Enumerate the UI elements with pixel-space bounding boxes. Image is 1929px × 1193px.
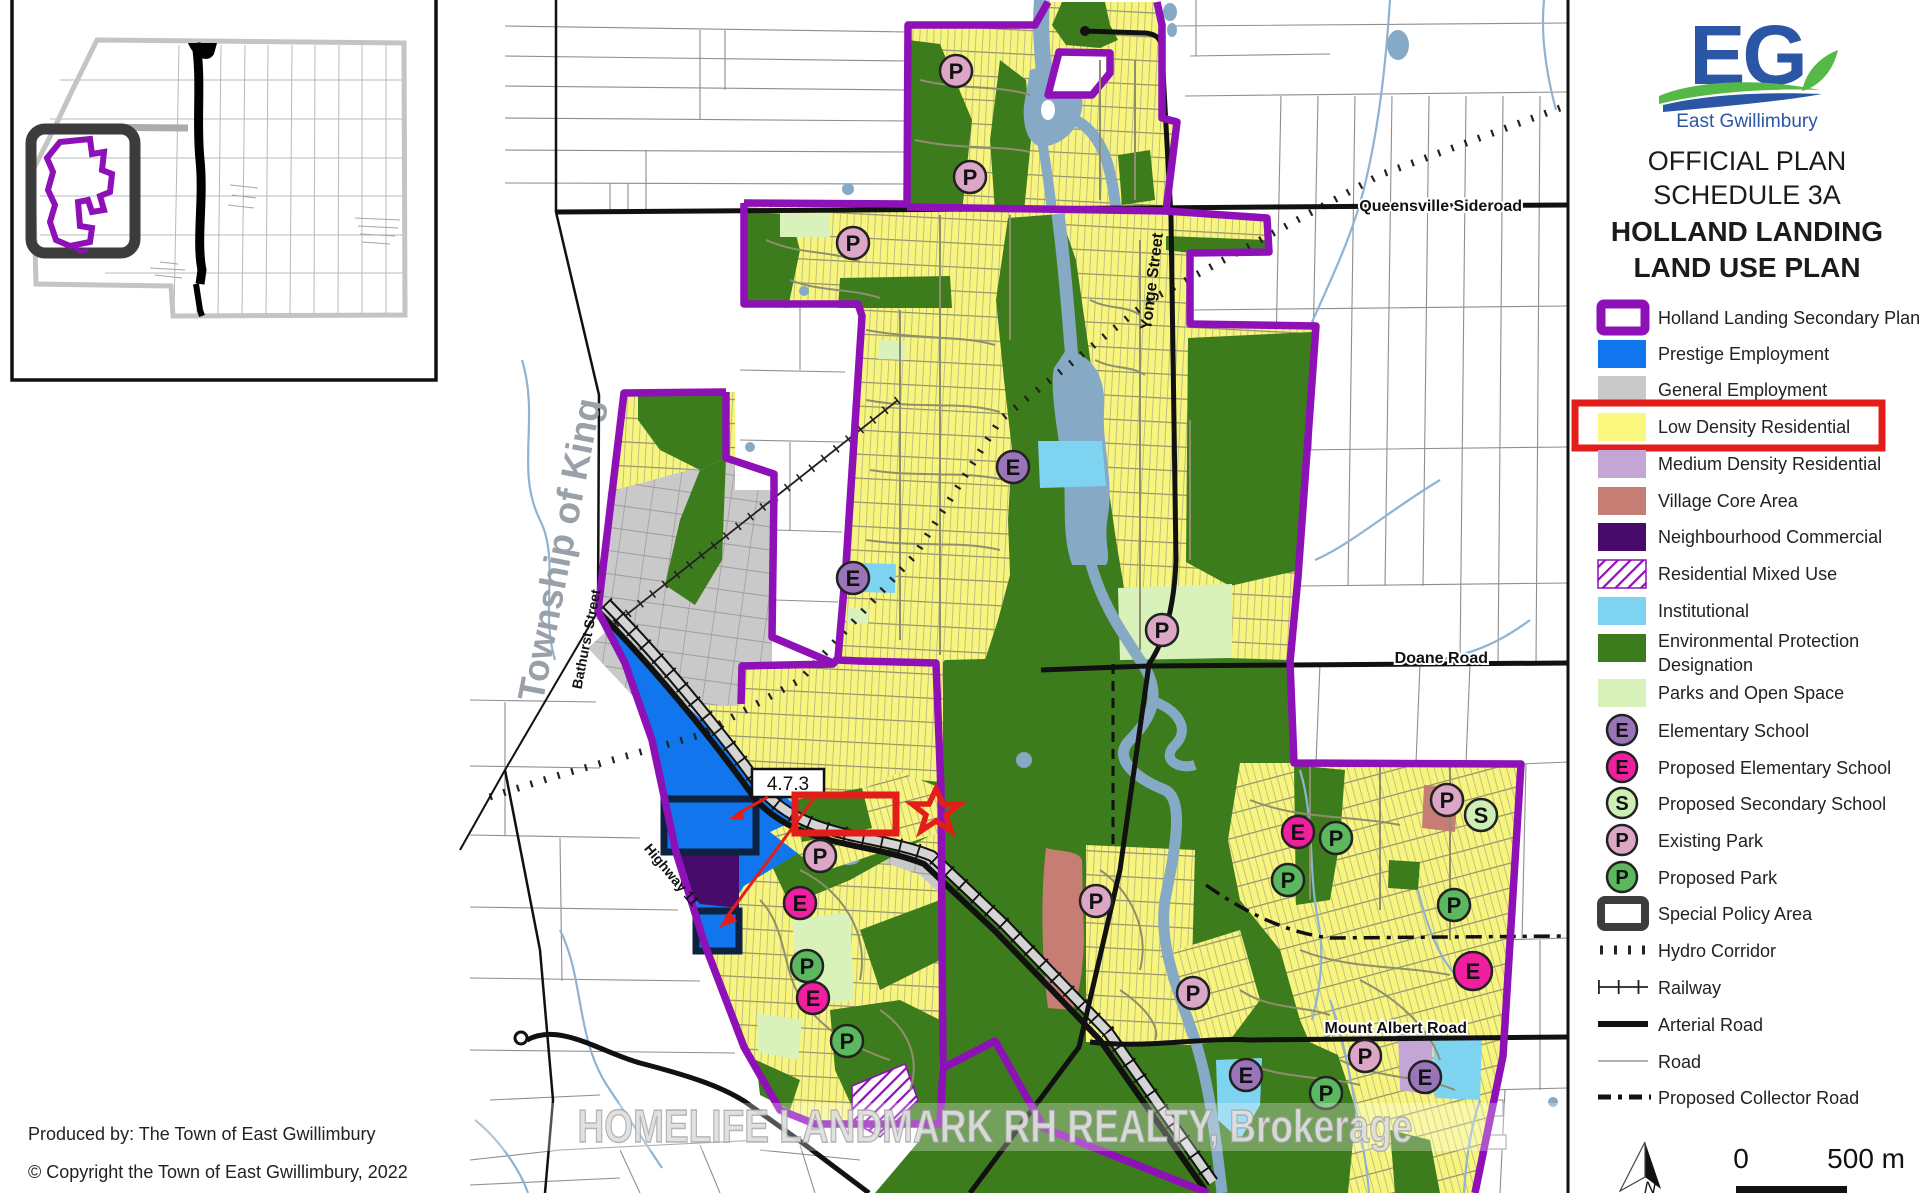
svg-text:P: P [1615,830,1628,852]
svg-text:P: P [1089,889,1104,914]
svg-text:E: E [1615,757,1628,779]
svg-text:Neighbourhood Commercial: Neighbourhood Commercial [1658,527,1882,547]
svg-text:E: E [1615,720,1628,742]
svg-text:P: P [840,1029,855,1054]
svg-text:Hydro Corridor: Hydro Corridor [1658,941,1776,961]
svg-text:P: P [1329,826,1344,851]
svg-text:P: P [846,231,861,256]
svg-text:P: P [1358,1044,1373,1069]
svg-text:Mount Albert Road: Mount Albert Road [1325,1020,1468,1037]
svg-text:Proposed Secondary School: Proposed Secondary School [1658,794,1886,814]
svg-text:Existing Park: Existing Park [1658,831,1764,851]
svg-text:© Copyright the Town of East G: © Copyright the Town of East Gwillimbury… [28,1162,408,1182]
svg-text:Environmental Protection: Environmental Protection [1658,631,1859,651]
svg-text:0: 0 [1733,1143,1749,1174]
svg-text:P: P [813,844,828,869]
svg-text:Holland Landing Secondary Plan: Holland Landing Secondary Plan [1658,308,1920,328]
svg-text:E: E [806,986,821,1011]
svg-text:Elementary School: Elementary School [1658,721,1809,741]
svg-text:Medium Density Residential: Medium Density Residential [1658,454,1881,474]
svg-text:LAND USE PLAN: LAND USE PLAN [1633,252,1860,283]
svg-text:P: P [1440,788,1455,813]
svg-text:E: E [1006,455,1021,480]
svg-text:HOMELIFE LANDMARK RH REALTY, B: HOMELIFE LANDMARK RH REALTY, Brokerage [578,1100,1413,1152]
svg-text:Residential Mixed Use: Residential Mixed Use [1658,564,1837,584]
svg-text:Doane Road: Doane Road [1395,650,1488,667]
svg-text:P: P [1281,868,1296,893]
svg-text:P: P [1447,893,1462,918]
svg-text:Proposed Park: Proposed Park [1658,868,1778,888]
svg-text:E: E [846,566,861,591]
svg-text:P: P [1615,867,1628,889]
svg-text:E: E [1418,1065,1433,1090]
svg-text:East Gwillimbury: East Gwillimbury [1676,111,1818,132]
svg-text:HOLLAND LANDING: HOLLAND LANDING [1611,216,1883,247]
svg-text:Designation: Designation [1658,655,1753,675]
svg-text:P: P [800,954,815,979]
svg-text:E: E [1291,820,1306,845]
svg-text:Road: Road [1658,1052,1701,1072]
svg-text:N: N [1644,1178,1657,1193]
svg-text:Proposed Collector Road: Proposed Collector Road [1658,1088,1859,1108]
svg-text:P: P [1186,981,1201,1006]
svg-text:General Employment: General Employment [1658,380,1827,400]
svg-text:500 m: 500 m [1827,1143,1905,1174]
svg-text:S: S [1474,803,1489,828]
svg-text:P: P [1155,618,1170,643]
svg-text:E: E [1239,1063,1254,1088]
svg-text:Railway: Railway [1658,978,1721,998]
svg-text:Arterial Road: Arterial Road [1658,1015,1763,1035]
svg-text:Prestige Employment: Prestige Employment [1658,344,1829,364]
svg-text:Institutional: Institutional [1658,601,1749,621]
svg-text:Village Core Area: Village Core Area [1658,491,1799,511]
svg-text:S: S [1615,793,1628,815]
svg-text:Parks and Open Space: Parks and Open Space [1658,683,1844,703]
svg-text:E: E [1466,959,1481,984]
svg-text:SCHEDULE 3A: SCHEDULE 3A [1653,180,1841,210]
svg-text:P: P [949,59,964,84]
svg-text:Proposed Elementary School: Proposed Elementary School [1658,758,1891,778]
svg-text:Produced by: The Town of East: Produced by: The Town of East Gwillimbur… [28,1124,376,1144]
svg-text:P: P [963,165,978,190]
svg-text:OFFICIAL PLAN: OFFICIAL PLAN [1648,146,1847,176]
svg-text:Low Density Residential: Low Density Residential [1658,417,1850,437]
svg-text:Special Policy Area: Special Policy Area [1658,904,1813,924]
svg-text:Queensville Sideroad: Queensville Sideroad [1359,198,1522,215]
svg-text:E: E [793,891,808,916]
